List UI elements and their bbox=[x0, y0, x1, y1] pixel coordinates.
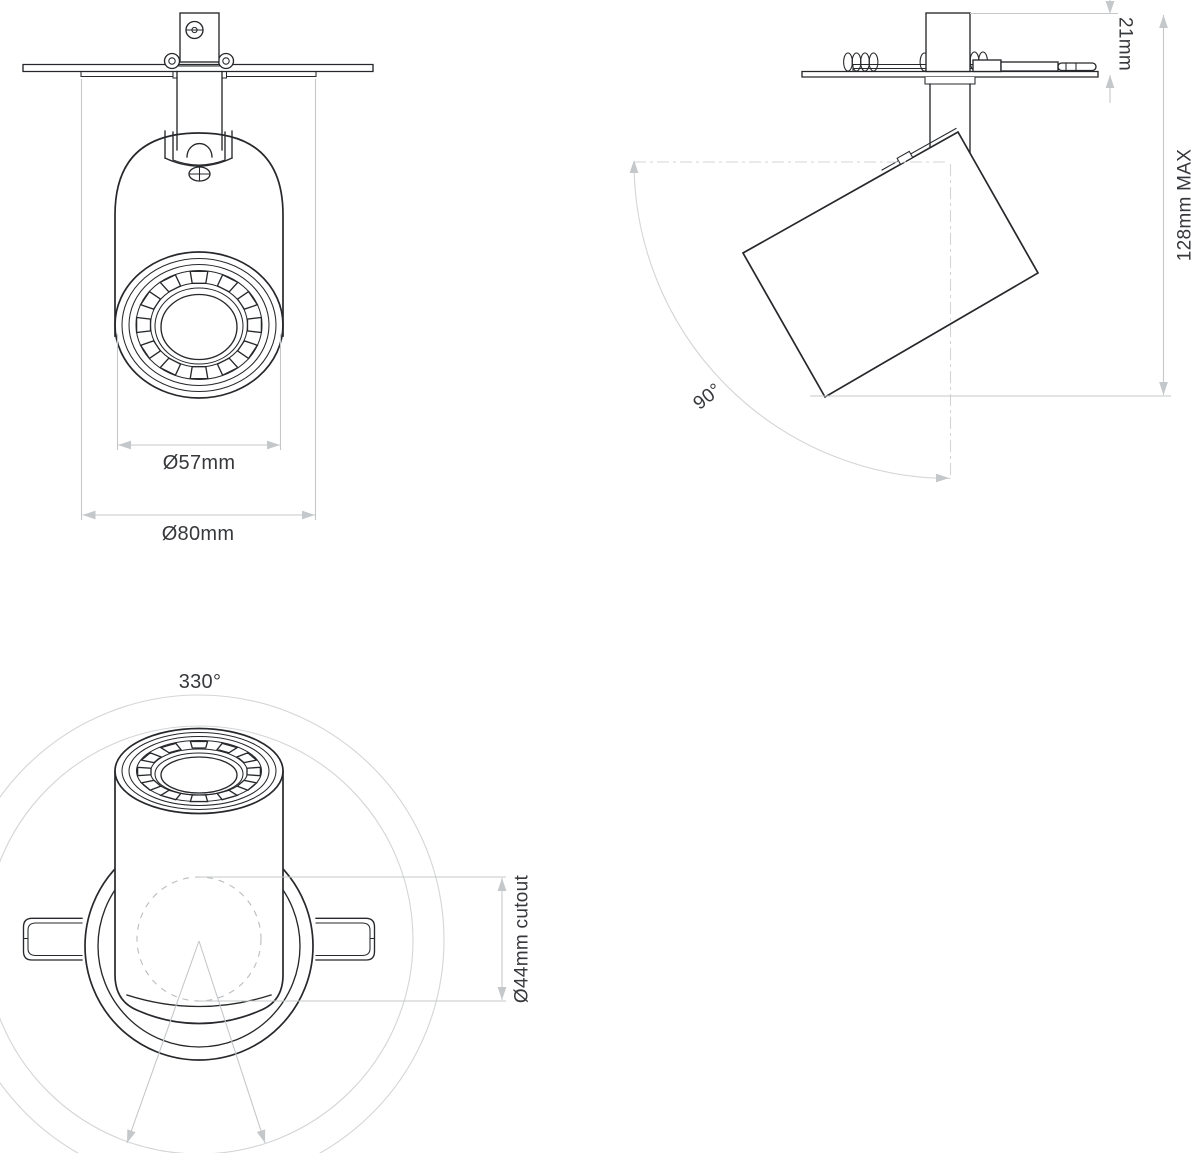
technical-drawing-page: Ø57mm Ø80mm bbox=[0, 0, 1200, 1153]
recess-depth-label: 21mm bbox=[1114, 17, 1135, 71]
lens bbox=[115, 252, 283, 398]
cutout-diameter-label: Ø44mm cutout bbox=[512, 874, 533, 1003]
bezel-diameter-label: Ø80mm bbox=[162, 523, 235, 545]
rotation-angle-label: 330° bbox=[179, 671, 222, 693]
side-stem-collar bbox=[925, 77, 975, 84]
max-projection-label: 128mm MAX bbox=[1175, 149, 1196, 262]
stem-top bbox=[926, 13, 970, 72]
plan-lens bbox=[115, 729, 283, 814]
front-view: Ø57mm Ø80mm bbox=[23, 13, 373, 545]
tilt-angle-label: 90° bbox=[690, 380, 726, 415]
plan-view: 330° Ø44mm cutout bbox=[0, 671, 533, 1153]
side-ceiling-plate bbox=[802, 72, 1098, 78]
stem bbox=[177, 77, 222, 150]
side-view: 90° 21mm 128mm MAX bbox=[634, 0, 1196, 479]
tilted-lamp-body bbox=[743, 132, 1038, 397]
cable-gland bbox=[973, 60, 1096, 72]
lens-diameter-label: Ø57mm bbox=[163, 452, 236, 474]
pivot-screw bbox=[189, 167, 210, 181]
fixing-screw bbox=[186, 22, 203, 39]
technical-drawing-canvas: Ø57mm Ø80mm bbox=[0, 0, 1200, 1153]
